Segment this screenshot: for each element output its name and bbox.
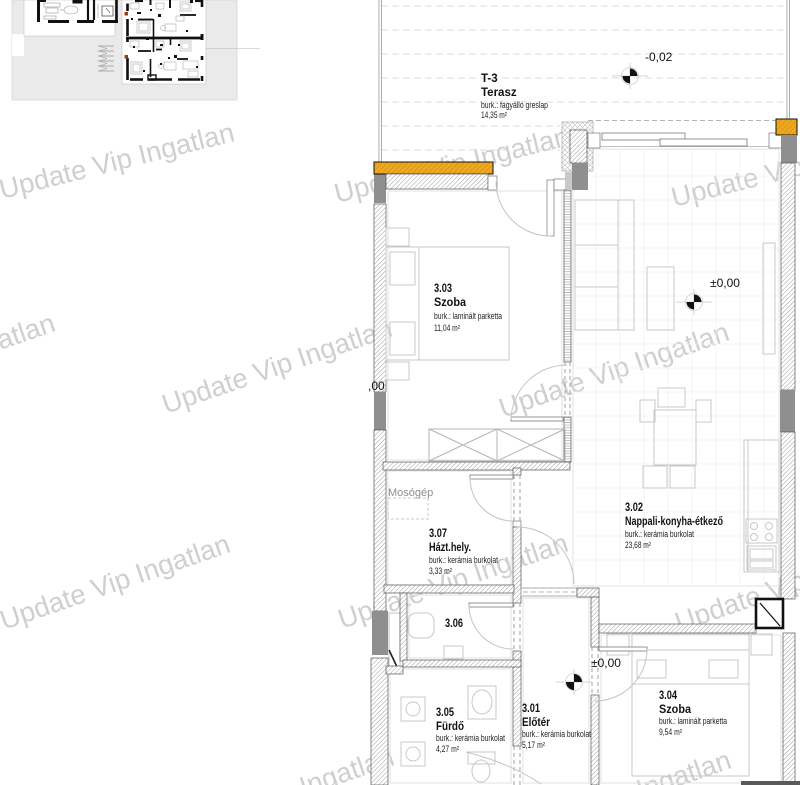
svg-text:Update Vip Ingatlan: Update Vip Ingatlan [160,741,398,785]
svg-text:-0,02: -0,02 [645,50,673,64]
svg-text:T-3: T-3 [481,73,498,85]
svg-text:Szoba: Szoba [659,704,692,716]
svg-text:burk.: fagyálló greslap: burk.: fagyálló greslap [481,100,548,110]
svg-text:±0,00: ±0,00 [710,276,740,290]
svg-text:3.02: 3.02 [625,502,643,514]
svg-text:3.07: 3.07 [429,528,447,540]
svg-text:burk.: kerámia burkolat: burk.: kerámia burkolat [625,529,694,539]
svg-text:burk.: kerámia burkolat: burk.: kerámia burkolat [436,733,505,743]
svg-text:,00: ,00 [368,379,385,393]
svg-text:Update Vip Ingatlan: Update Vip Ingatlan [0,307,59,415]
svg-text:Update Vip Ingatlan: Update Vip Ingatlan [158,312,396,420]
svg-text:3.05: 3.05 [436,707,454,719]
svg-text:23,68 m²: 23,68 m² [625,540,651,550]
svg-text:Előtér: Előtér [522,717,550,729]
svg-text:11,04 m²: 11,04 m² [434,323,460,333]
svg-text:burk.: kerámia burkolat: burk.: kerámia burkolat [429,555,498,565]
svg-text:burk.: laminált parketta: burk.: laminált parketta [659,716,727,726]
svg-text:3,33 m²: 3,33 m² [429,566,452,576]
svg-text:Fürdő: Fürdő [436,721,464,733]
svg-text:9,54 m²: 9,54 m² [659,727,682,737]
svg-text:Update Vip Ingatlan: Update Vip Ingatlan [495,316,733,424]
svg-text:burk.: laminált parketta: burk.: laminált parketta [434,311,502,321]
svg-text:3.01: 3.01 [522,703,540,715]
svg-text:Terasz: Terasz [481,87,517,99]
svg-text:±0,00: ±0,00 [591,656,621,670]
svg-text:5,17 m²: 5,17 m² [522,740,545,750]
svg-text:Update Vip Ingatlan: Update Vip Ingatlan [0,528,234,636]
svg-text:Szoba: Szoba [434,297,467,309]
svg-text:Update Vip Ingatlan: Update Vip Ingatlan [0,116,237,204]
svg-text:3.06: 3.06 [445,618,463,630]
svg-text:Házt.hely.: Házt.hely. [429,542,471,554]
svg-text:3.03: 3.03 [434,283,452,295]
svg-text:Mosógép: Mosógép [388,487,433,499]
svg-text:14,35 m²: 14,35 m² [481,110,507,120]
svg-text:Nappali-konyha-étkező: Nappali-konyha-étkező [625,516,723,528]
svg-text:4,27 m²: 4,27 m² [436,744,459,754]
svg-text:burk.: kerámia burkolat: burk.: kerámia burkolat [522,729,591,739]
svg-text:3.04: 3.04 [659,690,677,702]
